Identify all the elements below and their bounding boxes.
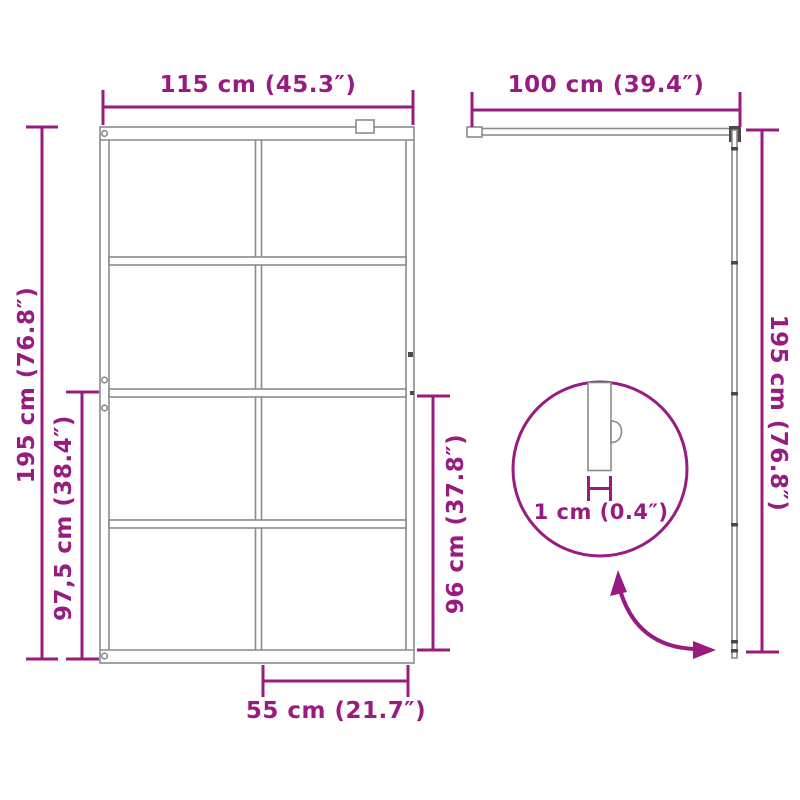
arrow-curve [620,590,695,649]
glass-clamp [731,523,738,527]
arrow-head-right-icon [693,641,716,659]
glass-clamp [731,147,738,151]
front-view-door [100,120,414,663]
edge-fitting [410,391,414,395]
technical-line-art [0,0,800,800]
glass-clamp [731,261,738,265]
front-width-label: 115 cm (45.3″) [160,72,357,98]
side-depth-label: 100 cm (39.4″) [508,72,705,98]
glass-cross-section [588,383,611,471]
screw-icon [102,405,108,411]
thickness-dimension [589,476,611,501]
support-bar [481,129,731,136]
arrow-head-up-icon [610,570,627,596]
muntin-bar-3 [109,520,406,528]
screw-icon [102,131,108,137]
glass-clamp [731,640,738,644]
screw-icon [102,653,108,659]
muntin-bar-2 [109,389,406,397]
support-bar-end-cap [467,127,482,137]
side-height-label: 195 cm (76.8″) [765,315,791,512]
thickness-label: 1 cm (0.4″) [534,500,669,524]
glass-clamp [731,392,738,396]
diagram-canvas: 115 cm (45.3″) 100 cm (39.4″) 195 cm (76… [0,0,800,800]
front-panel-width-label: 55 cm (21.7″) [246,698,426,724]
thickness-detail-view [513,382,687,556]
front-lower-height-label: 97,5 cm (38.4″) [51,415,77,621]
detail-pointer-arrow [610,570,716,659]
glass-clamp [731,649,738,653]
front-glass-height-label: 96 cm (37.8″) [443,434,469,614]
screw-icon [102,377,108,383]
edge-fitting [408,352,413,357]
front-height-label: 195 cm (76.8″) [14,287,40,484]
front-panel-width-dimension [263,665,408,697]
slider-block [356,120,374,133]
door-knob [611,421,622,443]
muntin-bar-1 [109,257,406,265]
